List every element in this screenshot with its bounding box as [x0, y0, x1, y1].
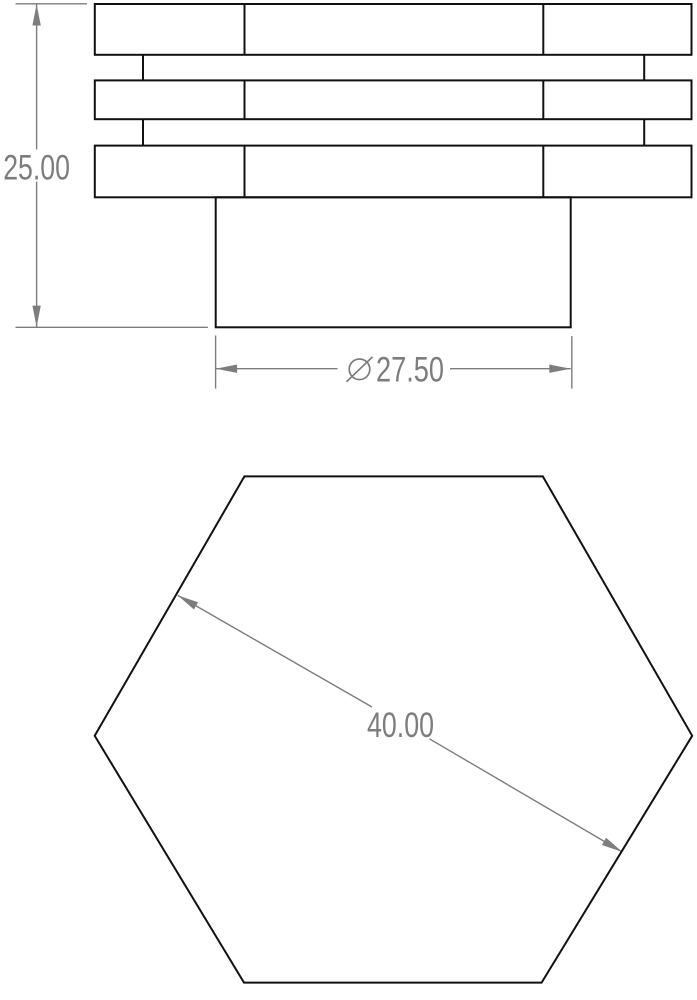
svg-text:40.00: 40.00 — [367, 706, 434, 745]
svg-text:27.50: 27.50 — [376, 350, 444, 389]
svg-text:25.00: 25.00 — [3, 148, 70, 187]
